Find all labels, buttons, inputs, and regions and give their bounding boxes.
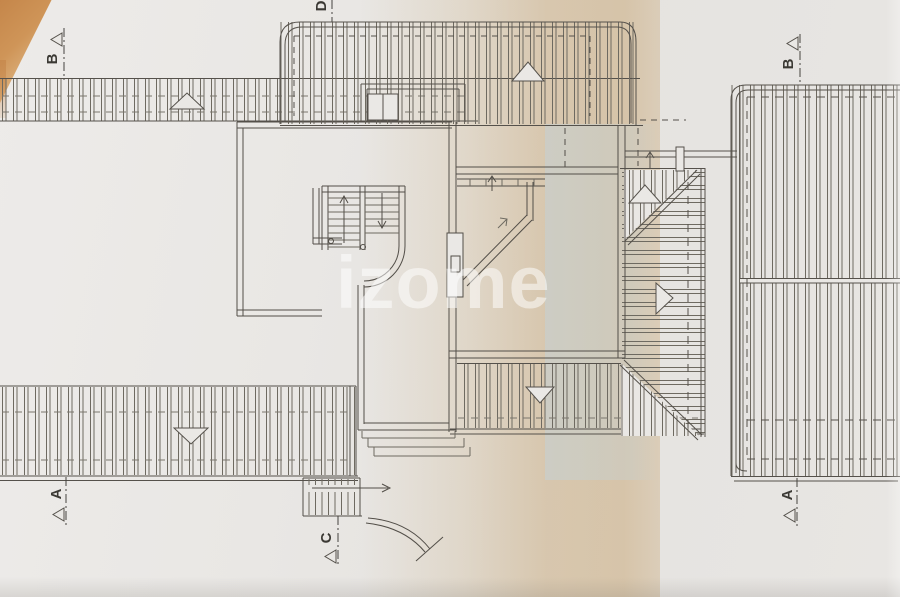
bottom-left-deck-band: [0, 386, 358, 481]
section-marker-a-right: A: [779, 486, 797, 504]
path-arrow-right: [312, 484, 390, 492]
entry-arrow-up: [488, 176, 496, 191]
paper-right-highlight: [886, 0, 900, 597]
right-outbuilding-roof: [731, 85, 900, 481]
hip-roof-section: [620, 120, 737, 440]
section-marker-a-left: A: [48, 485, 66, 503]
paper-bottom-shadow: [0, 577, 900, 597]
section-marker-b-left: B: [44, 50, 62, 68]
scanned-roof-plan: izome B D B A A C: [0, 0, 900, 597]
door-leaf-tick: [416, 537, 443, 561]
watermark: izome: [336, 246, 576, 320]
section-marker-b-right: B: [780, 55, 798, 73]
section-marker-d-top: D: [313, 0, 331, 15]
door-swing-arc: [366, 518, 430, 552]
section-marker-c-bottom: C: [318, 529, 336, 547]
stair-up-arrow: [646, 152, 654, 169]
exterior-steps: [303, 478, 443, 561]
upper-roof: [280, 22, 643, 126]
